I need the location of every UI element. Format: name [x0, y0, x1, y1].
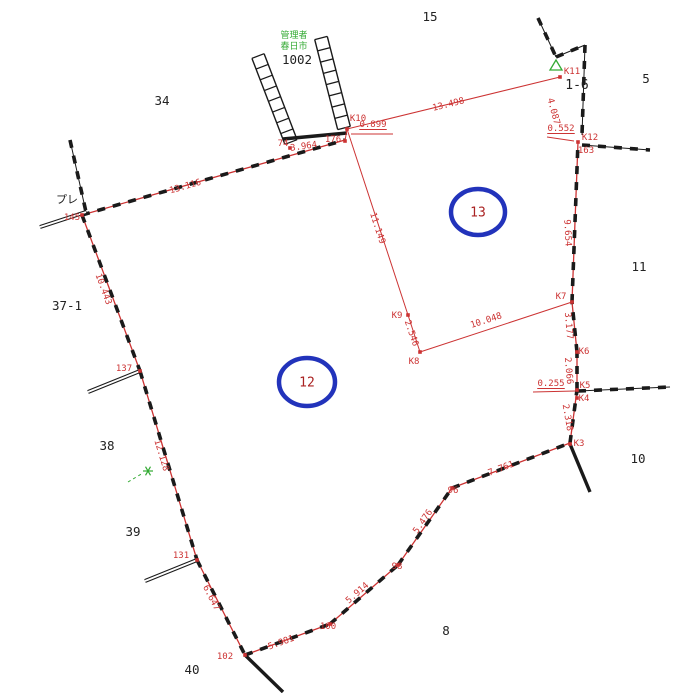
green-dashed-leader	[128, 473, 143, 482]
survey-point	[343, 139, 347, 143]
point-label: 176	[325, 135, 341, 145]
measurement-label: 7.761	[487, 460, 516, 479]
parcel-number: 37-1	[52, 298, 82, 313]
parcel-number: 1002	[282, 52, 312, 67]
point-label: K5	[580, 381, 591, 391]
point-label: K8	[409, 357, 420, 367]
steps-symbol-rung	[273, 107, 285, 112]
measurement-label: 2.546	[402, 319, 420, 348]
survey-point	[570, 300, 574, 304]
point-label: 145	[64, 213, 80, 223]
offset-measurement-label: 0.255	[537, 379, 564, 389]
survey-point	[195, 558, 199, 562]
point-label: K7	[556, 292, 567, 302]
red-survey-line	[420, 302, 572, 352]
point-label: 74	[278, 139, 289, 149]
survey-point	[80, 213, 84, 217]
steps-symbol-rung	[268, 97, 280, 102]
offset-measurement-label: 0.552	[547, 124, 574, 134]
steps-symbol-rung	[335, 115, 348, 118]
point-label: K11	[564, 67, 580, 77]
measurement-label: 13.116	[168, 178, 202, 197]
red-survey-line	[547, 137, 574, 141]
measurement-label: 2.318	[560, 403, 575, 431]
point-label: 98	[392, 562, 403, 572]
survey-point	[418, 350, 422, 354]
measurement-label: 5.476	[411, 508, 435, 536]
management-annotation: 管理者	[280, 29, 307, 41]
parcel-number: 1-6	[565, 78, 588, 93]
survey-point	[558, 75, 562, 79]
point-label: 100	[320, 622, 336, 632]
point-label: 163	[578, 146, 594, 156]
steps-symbol-rung	[281, 129, 293, 134]
steps-symbol-rung	[277, 118, 289, 123]
point-label: K4	[579, 394, 590, 404]
point-label: K3	[574, 439, 585, 449]
steps-symbol-rung	[329, 93, 342, 96]
survey-point	[568, 442, 572, 446]
red-survey-line	[533, 391, 575, 392]
point-label: K9	[392, 311, 403, 321]
measurement-label: 10.048	[469, 311, 503, 331]
black-thick-line	[245, 655, 283, 692]
steps-symbol-rung	[264, 86, 276, 91]
measurement-label: 4.087	[545, 97, 562, 126]
steps-symbol-rung	[320, 59, 333, 62]
measurement-label: 5.981	[267, 634, 296, 653]
measurement-label: 3.177	[562, 312, 574, 340]
point-label: 131	[173, 551, 189, 561]
boundary-line-hatch	[82, 215, 140, 371]
road-edge-line-gap	[145, 560, 197, 581]
survey-point	[406, 313, 410, 317]
point-label: 96	[448, 486, 459, 496]
cadastral-map-viewport: 13.11610.44312.1286.6475.9815.9145.4767.…	[0, 0, 673, 693]
parcel-number: 39	[125, 524, 140, 539]
survey-point	[345, 127, 349, 131]
road-edge-line-gap	[88, 371, 140, 392]
steps-symbol-rung	[256, 64, 268, 69]
steps-symbol-rung	[326, 81, 339, 84]
measurement-label: 12.128	[151, 438, 170, 472]
point-label: 102	[217, 652, 233, 662]
parcel-number: 40	[184, 662, 199, 677]
parcel-number: 38	[99, 438, 114, 453]
steps-symbol-rung	[332, 104, 345, 107]
steps-symbol-rung	[252, 54, 264, 59]
steps-symbol-rung	[323, 70, 336, 73]
management-annotation: 春日市	[280, 40, 307, 52]
steps-symbol-rung	[260, 75, 272, 80]
measurement-label: 6.647	[200, 584, 221, 613]
black-line	[578, 387, 670, 391]
measurement-label: 11.149	[367, 211, 387, 245]
steps-symbol-rung	[315, 36, 328, 39]
parcel-number: 8	[442, 623, 450, 638]
parcel-number: 15	[422, 9, 437, 24]
point-label: K10	[350, 114, 366, 124]
parcel-number: 34	[154, 93, 169, 108]
point-label: 137	[116, 364, 132, 374]
steps-symbol-rung	[318, 48, 331, 51]
black-thick-line	[570, 444, 590, 492]
point-label: K6	[579, 347, 590, 357]
cadastral-map-canvas: 13.11610.44312.1286.6475.9815.9145.4767.…	[0, 0, 673, 693]
survey-point	[576, 140, 580, 144]
black-line-hatch	[538, 18, 556, 57]
parcel-number: 11	[631, 259, 646, 274]
parcel-number: 5	[642, 71, 650, 86]
measurement-label: 3.964	[290, 140, 318, 154]
circled-parcel-number: 13	[470, 206, 486, 221]
measurement-label: 9.654	[561, 219, 572, 247]
measurement-label: 13.498	[432, 96, 466, 114]
benchmark-triangle-icon	[550, 60, 562, 70]
survey-point	[138, 369, 142, 373]
circled-parcel-number: 12	[299, 376, 315, 391]
point-label: K12	[582, 133, 598, 143]
survey-point	[243, 653, 247, 657]
survey-point	[575, 388, 579, 392]
parcel-number: プレ	[56, 193, 78, 206]
parcel-number: 10	[630, 451, 645, 466]
